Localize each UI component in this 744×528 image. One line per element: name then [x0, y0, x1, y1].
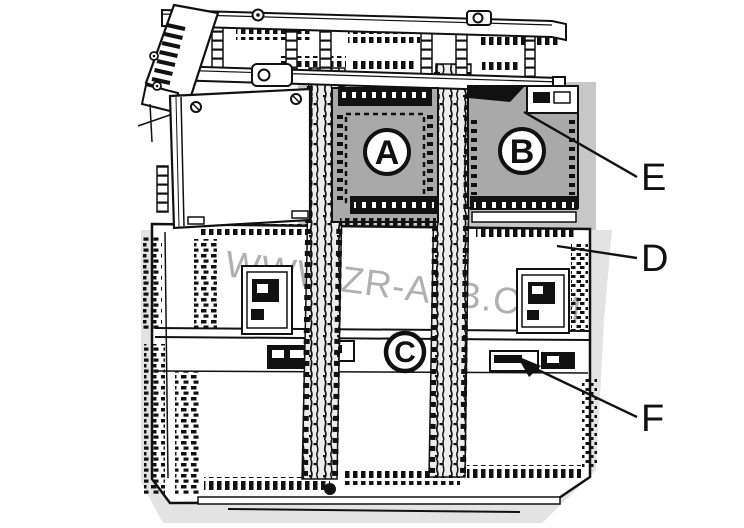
module-label-a: A: [365, 130, 409, 174]
diagram-canvas: WWW.ZR-ABB.COM: [0, 0, 744, 528]
screw-head: [324, 483, 336, 495]
svg-text:A: A: [375, 134, 400, 172]
svg-text:B: B: [510, 133, 535, 171]
svg-text:C: C: [394, 336, 416, 369]
relay-component-right: [517, 269, 569, 333]
bolt-icon: [467, 11, 491, 25]
screw-icon: [153, 82, 161, 90]
module-a: A: [332, 88, 438, 228]
screw-terminal-barrel: [252, 64, 292, 86]
screw-icon: [191, 102, 201, 112]
module-label-c: C: [386, 333, 424, 371]
module-label-b: B: [500, 129, 544, 173]
screw-icon: [291, 94, 301, 104]
left-blank-module: [170, 89, 310, 228]
callout-e-label: E: [641, 157, 666, 199]
din-rail-assembly: [162, 10, 566, 95]
callout-d-label: D: [641, 238, 668, 280]
module-b: B: [468, 86, 578, 222]
screw-icon: [150, 52, 158, 60]
technical-diagram: WWW.ZR-ABB.COM: [0, 0, 744, 528]
bolt-icon: [253, 10, 264, 21]
relay-component-left: [242, 266, 292, 334]
callout-f-label: F: [641, 398, 664, 440]
